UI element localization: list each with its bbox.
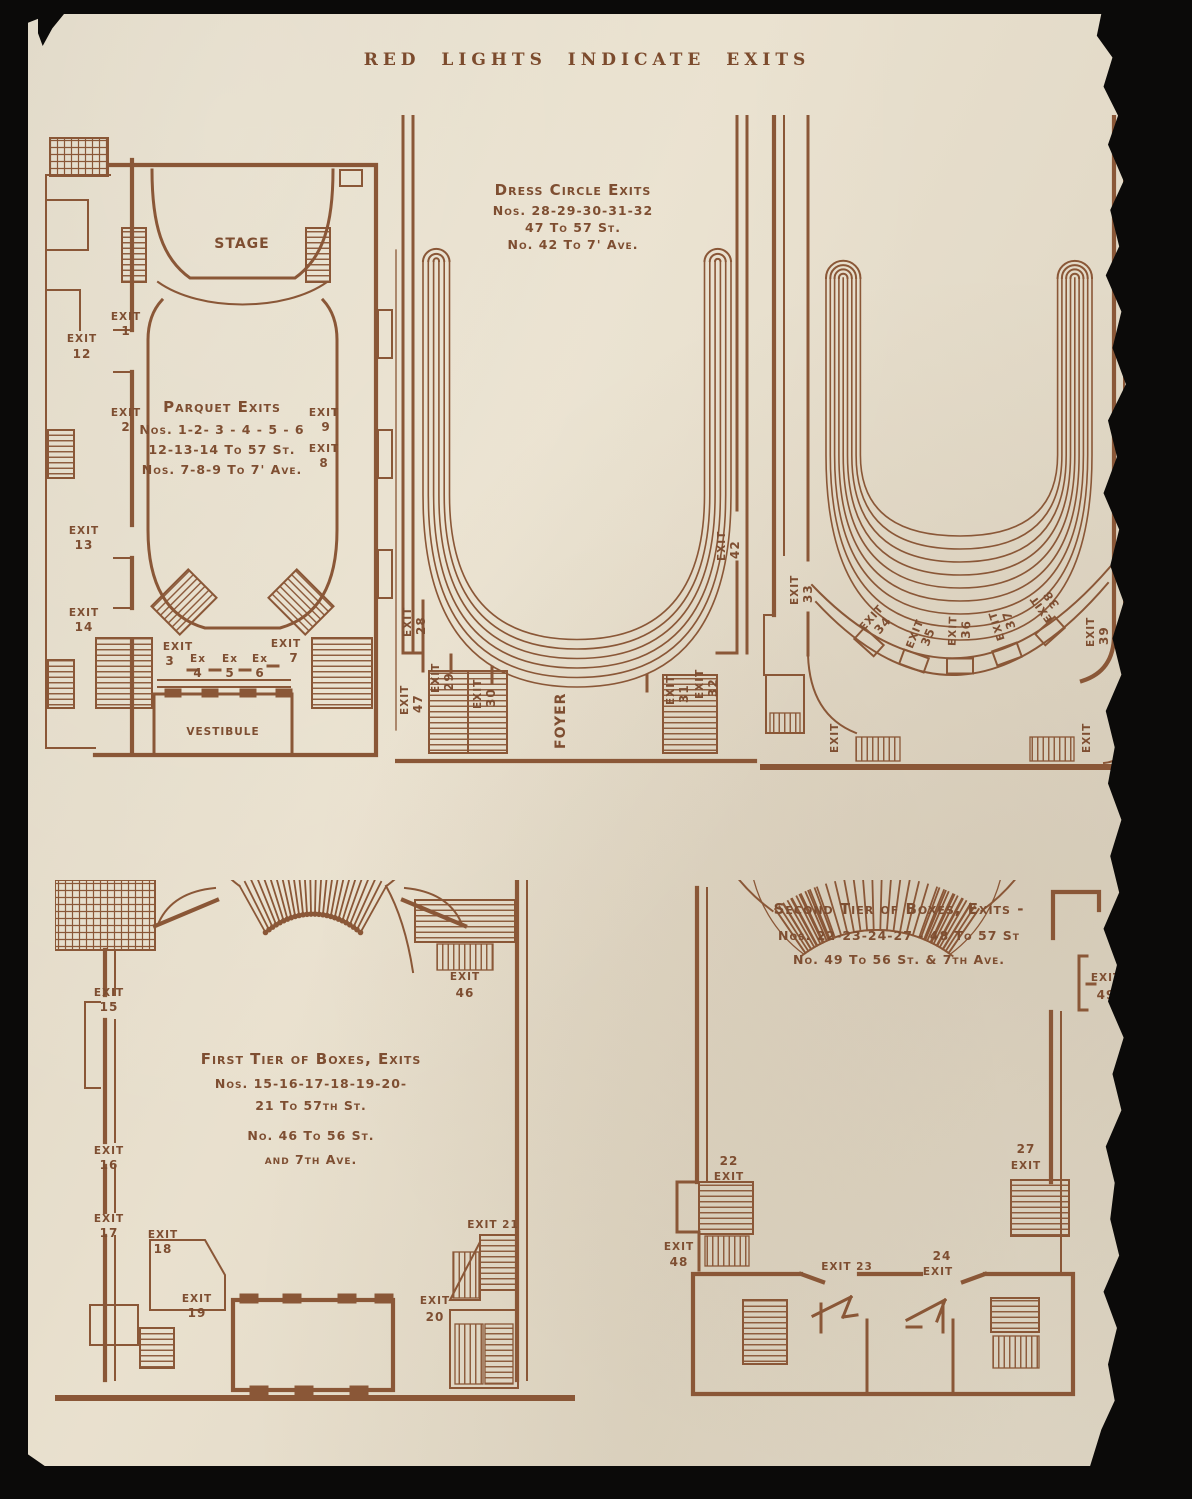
- second-tier-stair-hatch-left: [775, 888, 833, 953]
- exit-4-label: Ex: [190, 653, 206, 665]
- paper-sheet: RED LIGHTS INDICATE EXITS: [28, 14, 1146, 1466]
- exit-17-number: 17: [100, 1226, 119, 1240]
- exit-14-number: 14: [75, 620, 94, 634]
- exit-27-number: 27: [1017, 1142, 1036, 1156]
- exit-22-number: 22: [720, 1154, 739, 1168]
- exit-24-number: 24: [933, 1249, 952, 1263]
- dress-circle-corridor-curves: [423, 261, 731, 687]
- exit-5-number: 5: [225, 666, 234, 680]
- svg-text:FOYER: FOYER: [553, 693, 569, 749]
- exit-47-label: EXIT 47: [399, 685, 425, 715]
- exit-5-label: Ex: [222, 653, 238, 665]
- exit-18-label: EXIT: [148, 1229, 178, 1241]
- parquet-plan: STAGE EXIT 1 EXIT 12 EXIT 2 Parquet Exit…: [40, 130, 405, 780]
- page-title: RED LIGHTS INDICATE EXITS: [28, 50, 1146, 70]
- first-tier-plan: First Tier of Boxes, Exits Nos. 15-16-17…: [55, 880, 575, 1410]
- exit-20-label: EXIT: [420, 1295, 450, 1307]
- exit-13-number: 13: [75, 538, 94, 552]
- svg-text:39: 39: [1097, 626, 1111, 645]
- exit-49-label: EXIT: [1091, 972, 1121, 984]
- exit-21-label: EXIT 21: [467, 1219, 519, 1231]
- svg-text:EXIT: EXIT: [946, 616, 959, 647]
- parquet-heading: Parquet Exits: [163, 398, 281, 416]
- stage-label: STAGE: [214, 236, 269, 252]
- second-tier-stair-hatch-right: [921, 888, 979, 953]
- svg-text:42: 42: [728, 540, 742, 559]
- dress-circle-plan: Dress Circle Exits Nos. 28-29-30-31-32 4…: [395, 115, 760, 780]
- exit-corner-right-label: EXIT: [1081, 723, 1093, 753]
- svg-text:30: 30: [484, 688, 498, 707]
- svg-text:EXIT: EXIT: [829, 723, 841, 753]
- exit-19-label: EXIT: [182, 1293, 212, 1305]
- svg-text:29: 29: [442, 672, 456, 691]
- exit-23-label: EXIT 23: [821, 1261, 873, 1273]
- exit-1-number: 1: [121, 324, 130, 338]
- svg-text:33: 33: [801, 584, 815, 603]
- svg-text:EXIT: EXIT: [1085, 617, 1097, 647]
- svg-text:EXIT: EXIT: [716, 531, 728, 561]
- exit-32-label: EXIT 32: [694, 669, 720, 699]
- second-tier-plan: Second Tier of Boxes, Exits - Nos. 22-23…: [655, 880, 1130, 1420]
- exit-14-label: EXIT: [69, 607, 99, 619]
- svg-text:28: 28: [414, 616, 428, 635]
- first-tier-line-1: Nos. 15-16-17-18-19-20-: [215, 1076, 407, 1091]
- exit-18-number: 18: [154, 1242, 173, 1256]
- svg-text:EXIT: EXIT: [789, 575, 801, 605]
- svg-text:47: 47: [411, 694, 425, 713]
- parquet-line-1: Nos. 1-2- 3 - 4 - 5 - 6: [139, 422, 304, 437]
- exit-24-label: EXIT: [923, 1266, 953, 1278]
- exit-49-number: 49: [1097, 988, 1116, 1002]
- dress-circle-line-2: 47 To 57 St.: [525, 220, 621, 235]
- exit-4-number: 4: [193, 666, 202, 680]
- exit-15-number: 15: [100, 1000, 119, 1014]
- exit-27-label: EXIT: [1011, 1160, 1041, 1172]
- exit-7-number: 7: [289, 651, 298, 665]
- exit-3-label: EXIT: [163, 641, 193, 653]
- dress-circle-line-3: No. 42 To 7' Ave.: [508, 237, 639, 252]
- exit-6-number: 6: [255, 666, 264, 680]
- svg-text:EXIT: EXIT: [399, 685, 411, 715]
- vestibule-label: VESTIBULE: [186, 726, 259, 738]
- first-tier-line-3: No. 46 To 56 St.: [247, 1128, 374, 1143]
- exit-46-label: EXIT: [450, 971, 480, 983]
- exit-35-label: EXIT 35: [904, 618, 939, 656]
- balcony-row-curves: [826, 278, 1092, 640]
- exit-12-label: EXIT: [67, 333, 97, 345]
- exit-13-label: EXIT: [69, 525, 99, 537]
- exit-2-number: 2: [121, 420, 130, 434]
- first-tier-box-partitions: [240, 880, 387, 935]
- exit-48-number: 48: [670, 1255, 689, 1269]
- exit-corner-left-label: EXIT: [829, 723, 841, 753]
- exit-8-number: 8: [319, 456, 328, 470]
- exit-6-label: Ex: [252, 653, 268, 665]
- svg-text:EXIT: EXIT: [402, 607, 414, 637]
- exit-17-label: EXIT: [94, 1213, 124, 1225]
- dress-circle-heading: Dress Circle Exits: [495, 181, 652, 199]
- svg-text:EXIT: EXIT: [665, 675, 677, 705]
- svg-text:EXIT: EXIT: [1081, 723, 1093, 753]
- exit-48-label: EXIT: [664, 1241, 694, 1253]
- exit-3-number: 3: [165, 654, 174, 668]
- second-tier-heading: Second Tier of Boxes, Exits -: [774, 900, 1025, 918]
- svg-text:EXIT: EXIT: [472, 679, 484, 709]
- exit-7-label: EXIT: [271, 638, 301, 650]
- exit-2-label: EXIT: [111, 407, 141, 419]
- exit-16-label: EXIT: [94, 1145, 124, 1157]
- parquet-line-2: 12-13-14 To 57 St.: [148, 442, 295, 457]
- exit-9-label: EXIT: [309, 407, 339, 419]
- svg-text:EXIT: EXIT: [430, 663, 442, 693]
- exit-36-label: EXIT 36: [946, 616, 973, 647]
- first-tier-line-2: 21 To 57th St.: [255, 1098, 367, 1113]
- exit-15-label: EXIT: [94, 987, 124, 999]
- exit-46-number: 46: [456, 986, 475, 1000]
- balcony-plan: EXIT 33 EXIT 34 EXIT 35 EXIT 36 EXIT 37 …: [760, 115, 1150, 785]
- exit-19-number: 19: [188, 1306, 207, 1320]
- first-tier-line-4: and 7th Ave.: [265, 1152, 358, 1167]
- exit-8-label: EXIT: [309, 443, 339, 455]
- svg-text:EXIT: EXIT: [694, 669, 706, 699]
- parquet-line-3: Nos. 7-8-9 To 7' Ave.: [142, 462, 302, 477]
- second-tier-line-1: Nos. 22-23-24-27 - 48 To 57 St: [778, 928, 1020, 943]
- dress-circle-line-1: Nos. 28-29-30-31-32: [493, 203, 653, 218]
- exit-33-label: EXIT 33: [789, 575, 815, 605]
- exit-39-label: EXIT 39: [1085, 617, 1111, 647]
- exit-12-number: 12: [73, 347, 92, 361]
- exit-1-label: EXIT: [111, 311, 141, 323]
- svg-text:31: 31: [677, 684, 691, 703]
- second-tier-line-2: No. 49 To 56 St. & 7th Ave.: [793, 952, 1005, 967]
- svg-text:36: 36: [959, 620, 974, 639]
- exit-22-label: EXIT: [714, 1171, 744, 1183]
- svg-text:32: 32: [706, 678, 720, 697]
- exit-9-number: 9: [321, 420, 330, 434]
- scan-backdrop: RED LIGHTS INDICATE EXITS: [0, 0, 1192, 1499]
- foyer-label: FOYER: [553, 693, 569, 749]
- exit-20-number: 20: [426, 1310, 445, 1324]
- first-tier-heading: First Tier of Boxes, Exits: [201, 1050, 422, 1068]
- exit-16-number: 16: [100, 1158, 119, 1172]
